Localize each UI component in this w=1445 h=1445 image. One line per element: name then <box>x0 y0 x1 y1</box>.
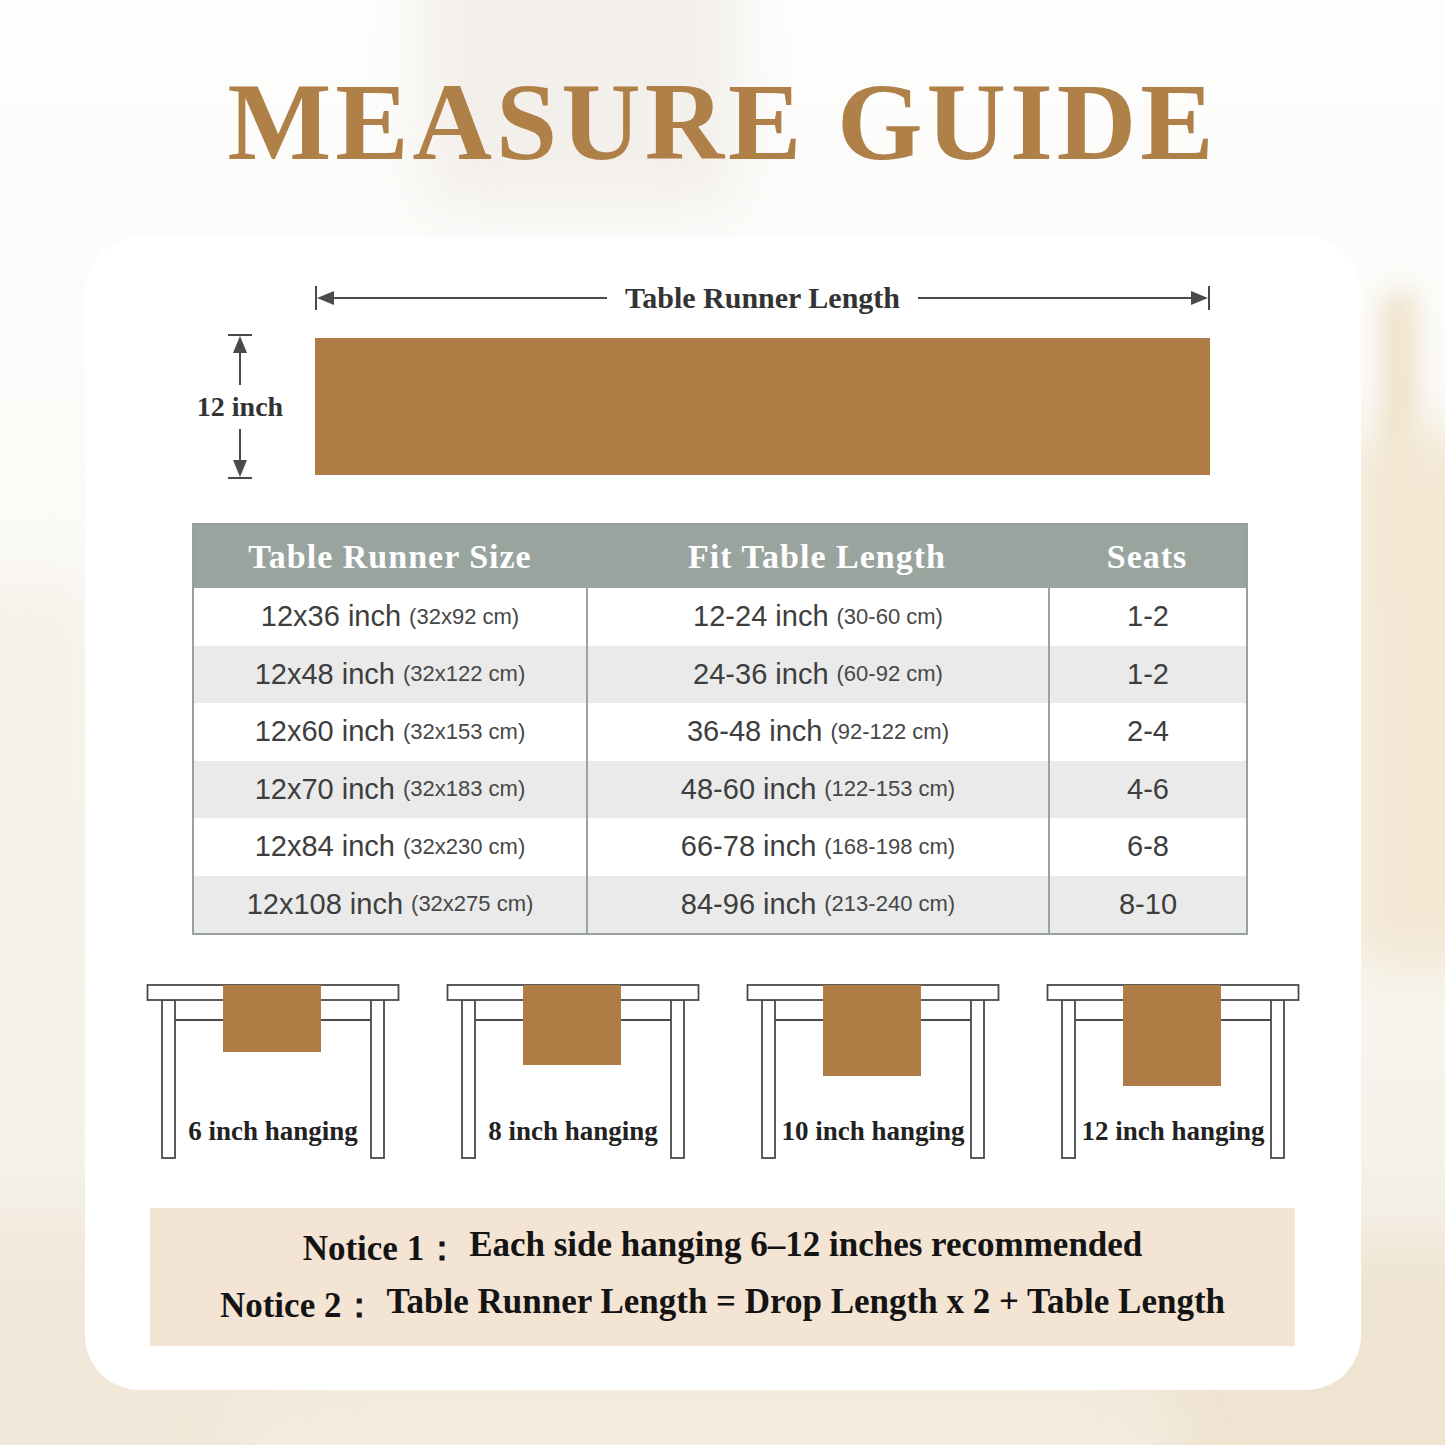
size-table-header: Table Runner Size Fit Table Length Seats <box>194 525 1246 588</box>
notice-box: Notice 1： Each side hanging 6–12 inches … <box>150 1208 1295 1346</box>
cell-fit-length: 36-48 inch(92-122 cm) <box>586 703 1048 761</box>
size-cm-value: (32x183 cm) <box>403 776 525 802</box>
fit-value: 36-48 inch <box>687 715 822 748</box>
fit-cm-value: (213-240 cm) <box>824 891 955 917</box>
notice-2-label: Notice 2： <box>220 1282 376 1329</box>
runner-width-dimension: 12 inch <box>180 334 300 479</box>
size-cm-value: (32x122 cm) <box>403 661 525 687</box>
notice-2-text: Table Runner Length = Drop Length x 2 + … <box>386 1282 1225 1329</box>
table-row: 12x84 inch(32x230 cm) 66-78 inch(168-198… <box>194 818 1246 876</box>
hanging-example-6-inch: 6 inch hanging <box>143 976 403 1181</box>
cell-seats: 6-8 <box>1048 818 1246 876</box>
cell-fit-length: 24-36 inch(60-92 cm) <box>586 646 1048 704</box>
size-value: 12x36 inch <box>261 600 401 633</box>
cell-fit-length: 12-24 inch(30-60 cm) <box>586 588 1048 646</box>
page-title: MEASURE GUIDE <box>0 62 1445 183</box>
cell-runner-size: 12x84 inch(32x230 cm) <box>194 818 586 876</box>
runner-drape <box>223 985 321 1052</box>
cell-runner-size: 12x36 inch(32x92 cm) <box>194 588 586 646</box>
cell-runner-size: 12x70 inch(32x183 cm) <box>194 761 586 819</box>
column-header-seats: Seats <box>1048 538 1246 576</box>
cell-runner-size: 12x48 inch(32x122 cm) <box>194 646 586 704</box>
table-illustration <box>1043 976 1303 1181</box>
runner-length-dimension: Table Runner Length <box>315 283 1210 313</box>
size-table: Table Runner Size Fit Table Length Seats… <box>192 523 1248 935</box>
measure-guide-card: Table Runner Length 12 inch Table Runner… <box>85 237 1361 1390</box>
runner-drape <box>1123 985 1221 1086</box>
size-cm-value: (32x92 cm) <box>409 604 519 630</box>
table-row: 12x70 inch(32x183 cm) 48-60 inch(122-153… <box>194 761 1246 819</box>
hanging-label: 10 inch hanging <box>743 1116 1003 1147</box>
fit-value: 48-60 inch <box>681 773 816 806</box>
size-value: 12x108 inch <box>247 888 403 921</box>
hanging-example-8-inch: 8 inch hanging <box>443 976 703 1181</box>
size-cm-value: (32x230 cm) <box>403 834 525 860</box>
notice-line-2: Notice 2： Table Runner Length = Drop Len… <box>220 1282 1225 1329</box>
dimension-line-top <box>239 353 241 385</box>
measure-guide-page: MEASURE GUIDE Table Runner Length 12 inc… <box>0 0 1445 1445</box>
dimension-line-bottom <box>239 429 241 461</box>
runner-drape <box>523 985 621 1065</box>
cell-fit-length: 48-60 inch(122-153 cm) <box>586 761 1048 819</box>
table-row: 12x108 inch(32x275 cm) 84-96 inch(213-24… <box>194 876 1246 934</box>
notice-1-text: Each side hanging 6–12 inches recommende… <box>469 1225 1142 1272</box>
runner-length-label: Table Runner Length <box>607 281 918 315</box>
table-row: 12x60 inch(32x153 cm) 36-48 inch(92-122 … <box>194 703 1246 761</box>
fit-cm-value: (168-198 cm) <box>824 834 955 860</box>
hanging-example-10-inch: 10 inch hanging <box>743 976 1003 1181</box>
dimension-end-tick-bottom <box>228 477 252 479</box>
cell-seats: 4-6 <box>1048 761 1246 819</box>
size-cm-value: (32x275 cm) <box>411 891 533 917</box>
arrow-down-icon <box>233 460 247 477</box>
dimension-end-tick-right <box>1208 286 1210 310</box>
arrow-up-icon <box>233 336 247 353</box>
size-cm-value: (32x153 cm) <box>403 719 525 745</box>
fit-cm-value: (92-122 cm) <box>830 719 949 745</box>
fit-value: 12-24 inch <box>693 600 828 633</box>
hanging-label: 6 inch hanging <box>143 1116 403 1147</box>
cell-runner-size: 12x108 inch(32x275 cm) <box>194 876 586 934</box>
runner-drape <box>823 985 921 1076</box>
column-header-runner-size: Table Runner Size <box>194 538 586 576</box>
hanging-label: 12 inch hanging <box>1043 1116 1303 1147</box>
size-value: 12x60 inch <box>255 715 395 748</box>
fit-value: 84-96 inch <box>681 888 816 921</box>
background-floor-blur <box>230 1390 1180 1445</box>
notice-line-1: Notice 1： Each side hanging 6–12 inches … <box>303 1225 1143 1272</box>
fit-value: 66-78 inch <box>681 830 816 863</box>
runner-width-label: 12 inch <box>197 385 283 429</box>
dimension-line-right <box>918 297 1191 299</box>
table-illustration <box>443 976 703 1181</box>
table-row: 12x48 inch(32x122 cm) 24-36 inch(60-92 c… <box>194 646 1246 704</box>
fit-cm-value: (60-92 cm) <box>837 661 943 687</box>
cell-runner-size: 12x60 inch(32x153 cm) <box>194 703 586 761</box>
table-illustration <box>743 976 1003 1181</box>
fit-cm-value: (30-60 cm) <box>837 604 943 630</box>
table-runner-swatch <box>315 338 1210 475</box>
cell-seats: 2-4 <box>1048 703 1246 761</box>
dimension-line-left <box>334 297 607 299</box>
cell-fit-length: 84-96 inch(213-240 cm) <box>586 876 1048 934</box>
notice-1-label: Notice 1： <box>303 1225 459 1272</box>
size-value: 12x48 inch <box>255 658 395 691</box>
hanging-example-12-inch: 12 inch hanging <box>1043 976 1303 1181</box>
column-header-fit-length: Fit Table Length <box>586 538 1048 576</box>
table-illustration <box>143 976 403 1181</box>
cell-seats: 8-10 <box>1048 876 1246 934</box>
size-value: 12x84 inch <box>255 830 395 863</box>
cell-seats: 1-2 <box>1048 588 1246 646</box>
size-value: 12x70 inch <box>255 773 395 806</box>
cell-fit-length: 66-78 inch(168-198 cm) <box>586 818 1048 876</box>
hanging-label: 8 inch hanging <box>443 1116 703 1147</box>
fit-cm-value: (122-153 cm) <box>824 776 955 802</box>
arrow-left-icon <box>317 291 334 305</box>
fit-value: 24-36 inch <box>693 658 828 691</box>
cell-seats: 1-2 <box>1048 646 1246 704</box>
table-row: 12x36 inch(32x92 cm) 12-24 inch(30-60 cm… <box>194 588 1246 646</box>
arrow-right-icon <box>1191 291 1208 305</box>
